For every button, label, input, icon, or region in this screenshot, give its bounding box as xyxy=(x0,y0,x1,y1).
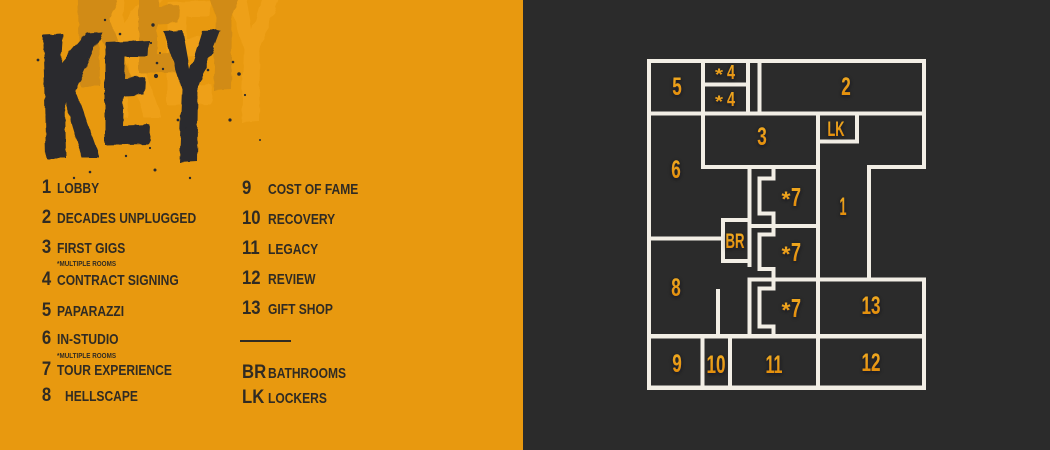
svg-text:11: 11 xyxy=(766,351,783,379)
svg-text:7: 7 xyxy=(791,182,801,212)
svg-text:13: 13 xyxy=(862,292,881,320)
svg-text:*: * xyxy=(782,299,792,322)
svg-text:*: * xyxy=(782,188,792,211)
svg-text:7: 7 xyxy=(791,237,801,267)
svg-text:10: 10 xyxy=(707,351,726,379)
svg-text:7: 7 xyxy=(791,293,801,323)
svg-text:3: 3 xyxy=(757,123,767,151)
svg-text:9: 9 xyxy=(672,350,682,378)
svg-text:5: 5 xyxy=(672,73,682,101)
svg-text:*: * xyxy=(715,65,723,84)
svg-text:1: 1 xyxy=(840,193,847,221)
svg-text:2: 2 xyxy=(841,73,851,101)
svg-text:12: 12 xyxy=(862,349,881,377)
svg-text:BR: BR xyxy=(726,230,745,253)
svg-text:*: * xyxy=(782,243,792,266)
svg-text:4: 4 xyxy=(727,89,736,111)
svg-text:*: * xyxy=(715,92,723,111)
svg-text:4: 4 xyxy=(727,62,736,84)
svg-text:LK: LK xyxy=(828,118,845,141)
svg-text:6: 6 xyxy=(671,156,681,184)
svg-text:8: 8 xyxy=(671,274,681,302)
